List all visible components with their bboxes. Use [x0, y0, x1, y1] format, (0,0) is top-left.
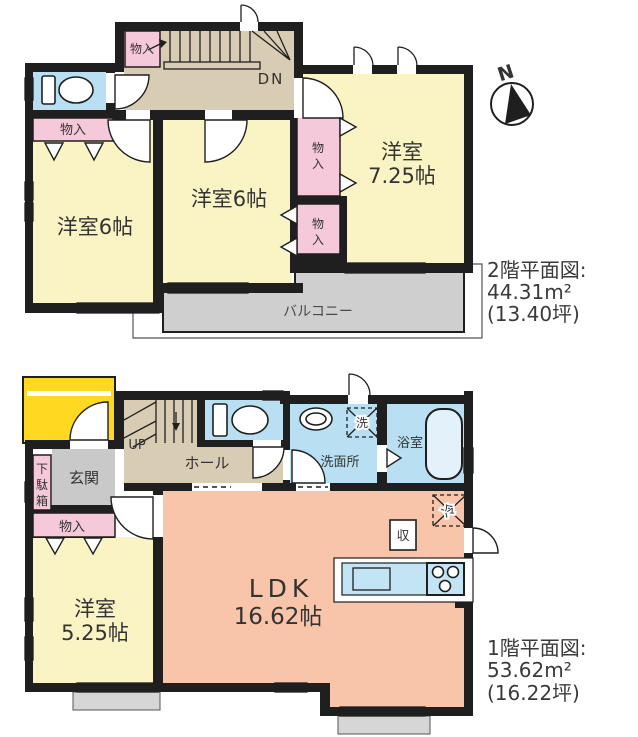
f1-title-line2: 53.62m²: [487, 658, 572, 682]
back-door: [349, 374, 370, 395]
ldk-side-door: [473, 528, 498, 553]
f1-closet-label: 物入: [59, 520, 85, 535]
f2-closet-mid-upper-char2: 入: [312, 157, 324, 171]
f2-title-line1: 2階平面図:: [487, 258, 586, 282]
floor2-diagram: 物入 物入 DN 洋室6帖 洋室6帖 洋室 7.25帖 バルコニー 物 入 物 …: [25, 5, 586, 338]
f2-closet-top-label: 物入: [130, 42, 154, 56]
f2-room-middle-label: 洋室6帖: [191, 187, 267, 211]
floor1-diagram: UP ホール 玄関 下 駄 箱 物入 洋室 5.25帖 LDK 16.62帖 洗…: [23, 374, 586, 734]
ldk-label-2: 16.62帖: [234, 604, 323, 630]
f2-title-line3: (13.40坪): [487, 302, 580, 326]
bathroom-label: 浴室: [397, 435, 423, 451]
washer-label: 洗: [356, 416, 368, 430]
kitchen-counter: [334, 558, 473, 602]
terrace-left: [73, 692, 160, 710]
f2-closet-left-label: 物入: [60, 123, 86, 138]
f1-western-room-label-2: 5.25帖: [61, 621, 129, 645]
compass: N: [491, 60, 533, 125]
washbasin-icon: [300, 408, 332, 430]
compass-n-label: N: [495, 60, 517, 86]
hall-label: ホール: [184, 454, 229, 472]
f2-stairs-dn-label: DN: [258, 70, 285, 88]
f1-stairs-up-label: UP: [128, 438, 146, 453]
floor-plan-canvas: 物入 物入 DN 洋室6帖 洋室6帖 洋室 7.25帖 バルコニー 物 入 物 …: [0, 0, 638, 737]
f1-western-room-door: [111, 497, 153, 539]
washroom-label: 洗面所: [320, 455, 359, 470]
shoe-cabinet-char1: 下: [36, 462, 48, 476]
ldk-label-1: LDK: [249, 574, 314, 603]
f2-room-left-label: 洋室6帖: [57, 215, 133, 239]
f1-title: 1階平面図: 53.62m² (16.22坪): [487, 636, 586, 705]
porch-step-line: [27, 391, 111, 396]
f1-western-room-label-1: 洋室: [74, 597, 116, 621]
f2-closet-mid-lower-char2: 入: [312, 233, 324, 247]
f2-closet-mid-upper-char1: 物: [312, 141, 324, 155]
f2-room-right-label-1: 洋室: [381, 140, 423, 164]
storage-label: 収: [396, 529, 409, 544]
f1-title-line3: (16.22坪): [487, 681, 580, 705]
bathtub-icon: [426, 409, 462, 479]
entrance-label: 玄関: [69, 469, 99, 487]
f2-closet-mid-lower-char1: 物: [312, 217, 324, 231]
f2-toilet-icon: [42, 76, 93, 104]
shoe-cabinet-char3: 箱: [36, 493, 48, 508]
shoe-cabinet-char2: 駄: [36, 477, 48, 492]
balcony-label: バルコニー: [283, 304, 353, 320]
f2-title: 2階平面図: 44.31m² (13.40坪): [487, 258, 586, 326]
f2-title-line2: 44.31m²: [487, 280, 572, 304]
terrace-right: [338, 716, 430, 734]
f1-toilet-icon: [213, 404, 268, 436]
f1-title-line1: 1階平面図:: [487, 636, 586, 660]
f2-room-right-label-2: 7.25帖: [368, 164, 436, 188]
